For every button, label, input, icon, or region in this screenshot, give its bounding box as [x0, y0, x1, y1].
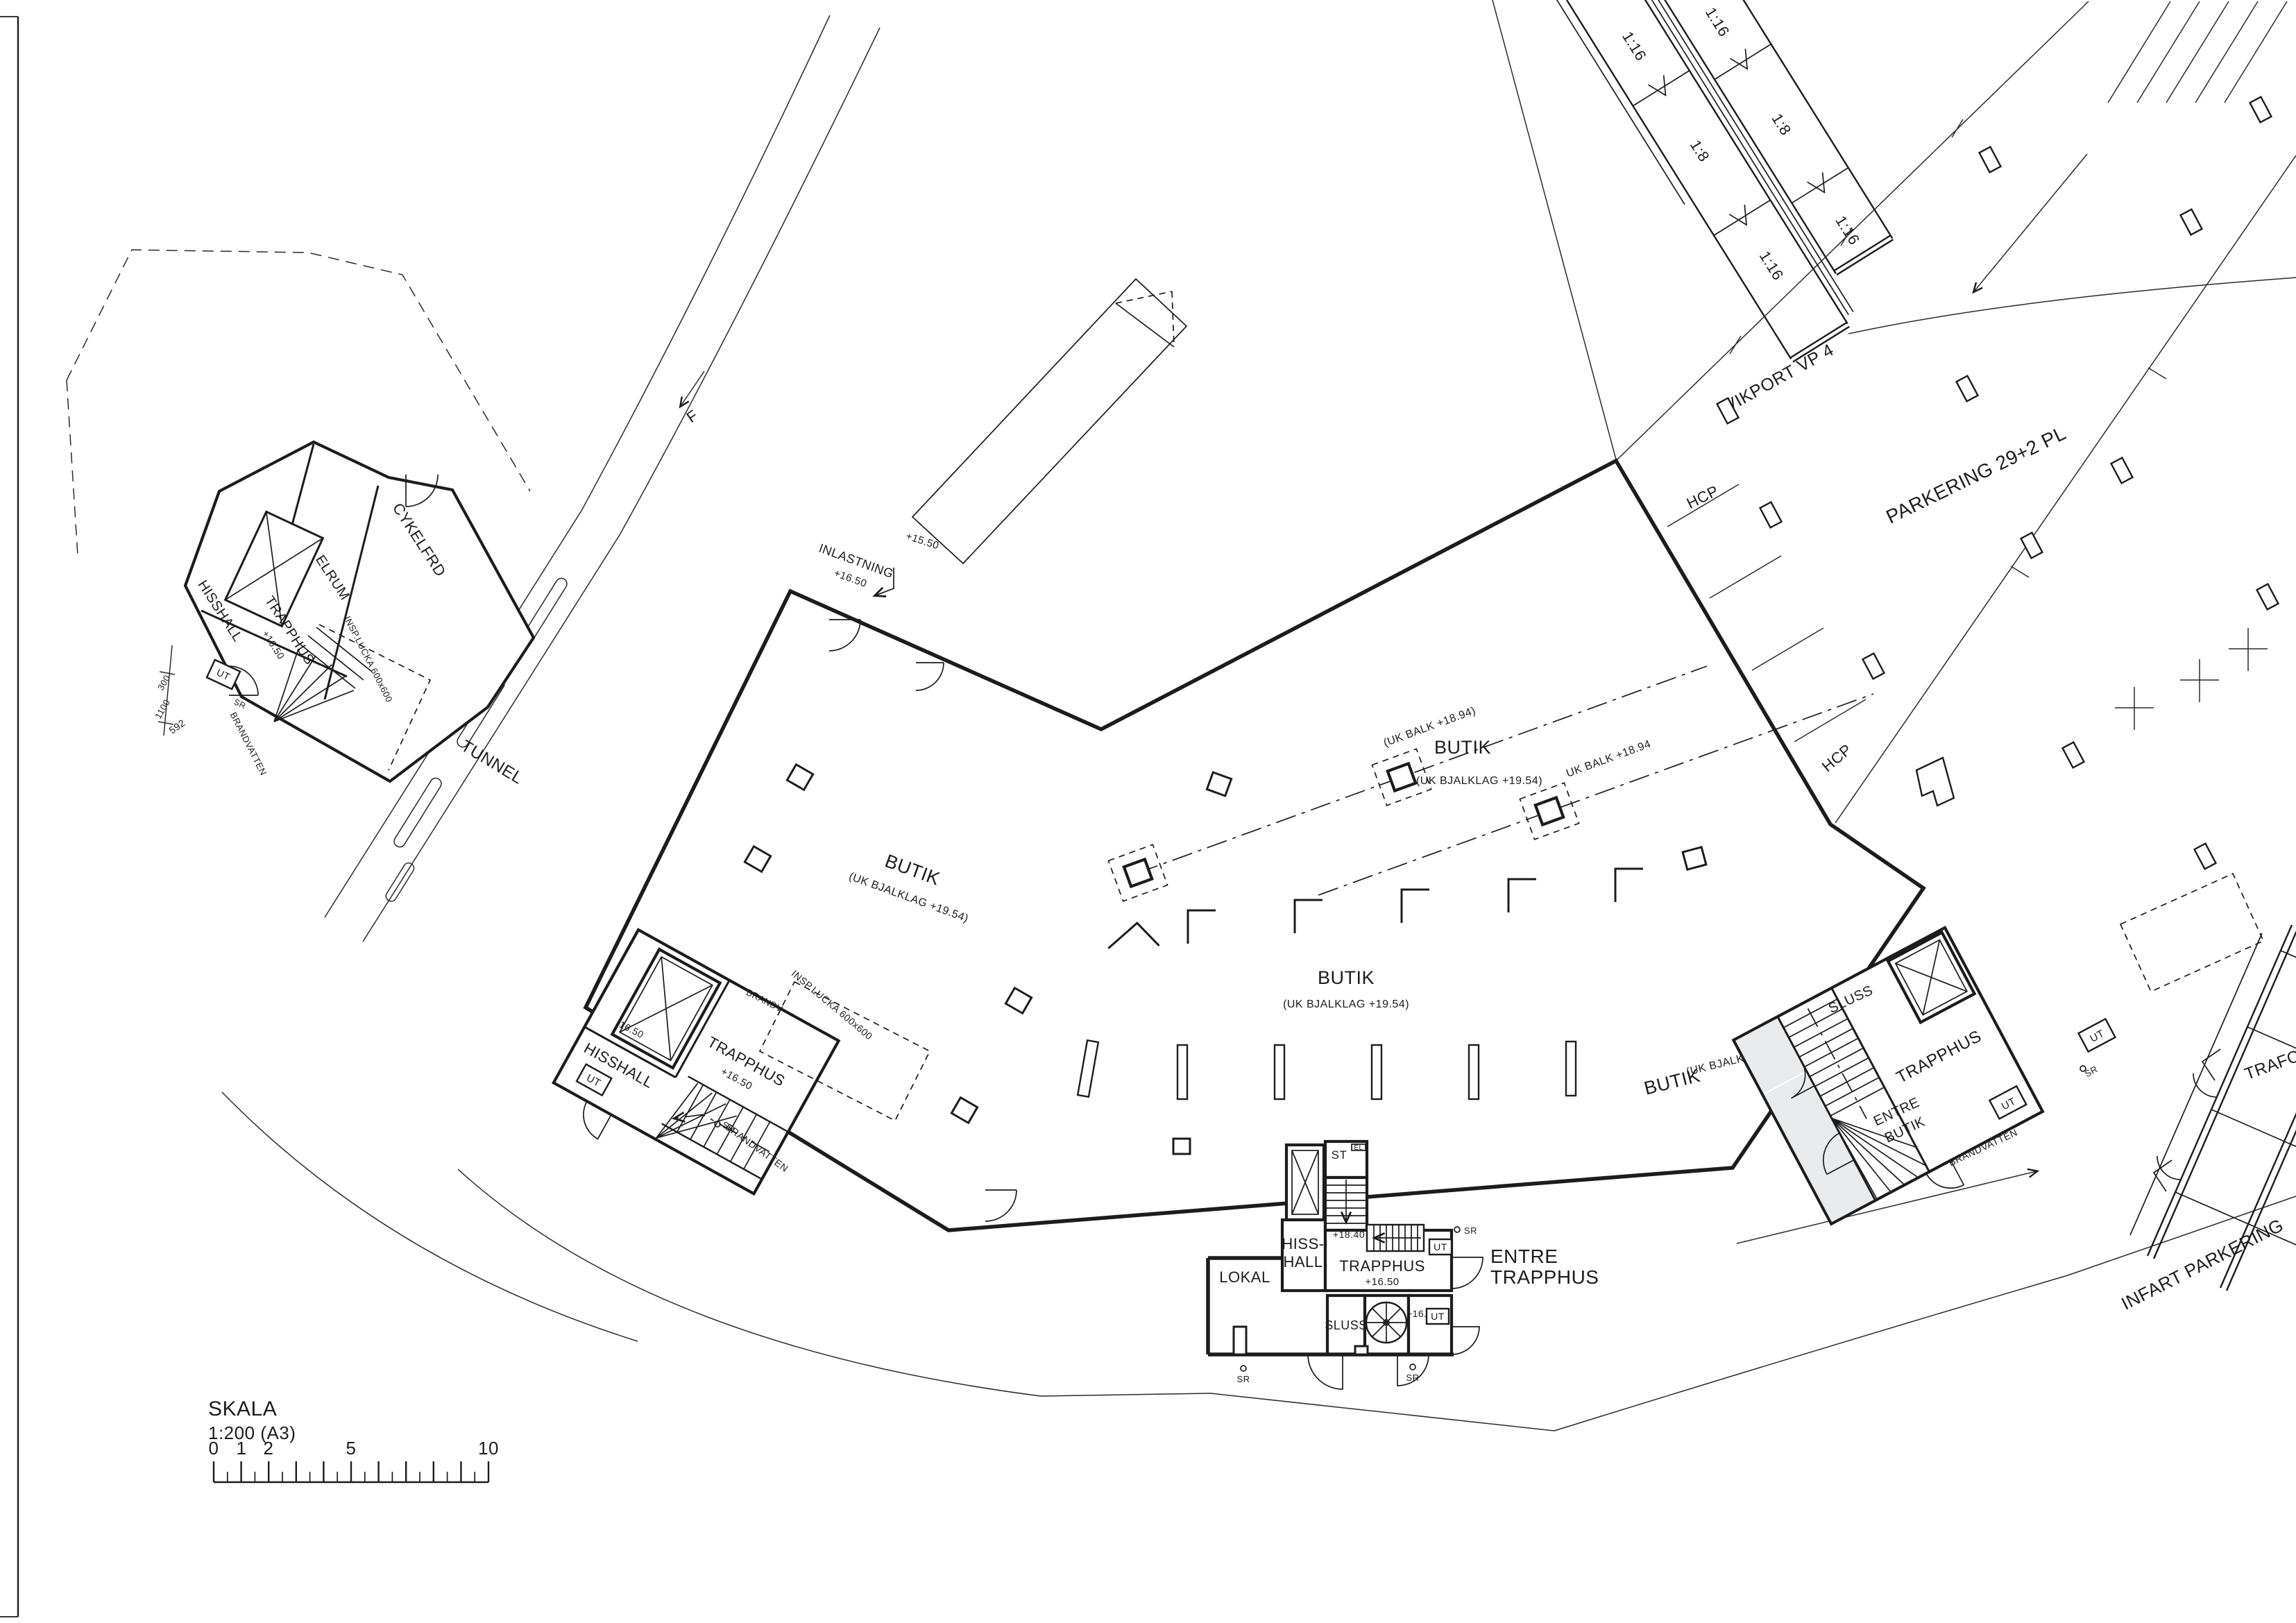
plan-drawing: F TUNNEL +15.50 1:16 1:8 1:16 1:16 1:8 1… [0, 0, 2296, 1623]
scale-num-0: 0 [209, 1438, 219, 1459]
ut-label: UT [1431, 1311, 1445, 1322]
butik-note: (UK BJALKLAG +19.54) [1283, 999, 1409, 1010]
sr-marker: SR [1406, 1373, 1419, 1383]
parkering-label: PARKERING 29+2 PL [1882, 422, 2069, 527]
sr-marker: SR [1464, 1225, 1477, 1236]
ramp-grade: 1:8 [1687, 137, 1713, 164]
scale-bar: SKALA 1:200 (A3) 0 1 2 5 10 [208, 1397, 499, 1482]
scale-num-1: 1 [237, 1438, 247, 1459]
ut-label: UT [1434, 1241, 1447, 1252]
st-label: ST [1332, 1148, 1347, 1162]
tunnel-label: TUNNEL [457, 737, 526, 788]
butik-label: BUTIK [1434, 737, 1491, 758]
butik-label: BUTIK [882, 850, 942, 889]
beam-note: UK BALK +18.94 [1565, 738, 1652, 780]
lokal-label: LOKAL [1219, 1268, 1270, 1286]
sluss-label: SLUSS [1325, 1318, 1368, 1332]
hisshall-line2: HALL [1283, 1253, 1323, 1271]
site-roads: F TUNNEL [222, 15, 2296, 1431]
ramp-grade: 1:8 [1768, 110, 1794, 138]
parking-field: PARKERING 29+2 PL HCP HCP [1493, 0, 2296, 869]
ramp-grade: 1:16 [1832, 212, 1863, 248]
scale-num-10: 10 [478, 1438, 499, 1459]
vikport-label: VIKPORT VP 4 [1721, 340, 1837, 416]
entre-trapphus-line2: TRAPPHUS [1490, 1266, 1599, 1288]
landing-level: +18.40 [1333, 1229, 1365, 1240]
scale-title: SKALA [208, 1397, 277, 1420]
butik-note: (UK BJALKLAG +19.54) [1416, 775, 1542, 787]
butik-label: BUTIK [1318, 967, 1375, 988]
hall-columns [745, 765, 1706, 1154]
ramp-grade: 1:16 [1756, 248, 1787, 283]
entre-trapphus-line1: ENTRE [1490, 1246, 1558, 1267]
parking-ramps: 1:16 1:8 1:16 1:16 1:8 1:16 [1530, 0, 1920, 366]
section-marker-f: F [683, 407, 701, 426]
bottom-annex: EL ST +18.40 HISS- HALL TRAPPHUS +16.50 … [1208, 1141, 1599, 1389]
dim-300: 300 [155, 673, 173, 692]
trapphus-label: TRAPPHUS [1339, 1257, 1425, 1275]
hall-wall-stubs [1108, 869, 1643, 955]
canopy-level: +15.50 [904, 530, 940, 552]
right-stair-core: TRAPPHUS UT [1733, 928, 2055, 1248]
ramp-grade: 1:16 [1619, 28, 1650, 64]
scale-num-5: 5 [346, 1438, 357, 1459]
brandvatten-note: BRANDVATTEN [228, 711, 269, 777]
parking-columns [1717, 97, 2279, 869]
floor-plan-sheet: F TUNNEL +15.50 1:16 1:8 1:16 1:16 1:8 1… [0, 0, 2296, 1623]
hcp-label: HCP [1684, 482, 1721, 512]
trafo-label: TRAFO [2242, 1046, 2296, 1084]
dim-592: 592 [167, 717, 187, 736]
sheet-frame [0, 17, 18, 1617]
sr-marker: SR [1236, 1374, 1250, 1384]
infart-label: INFART PARKERING [2118, 1214, 2286, 1314]
hall-wall-slots [1078, 1040, 1576, 1099]
dim-1100: 1100 [153, 697, 172, 720]
loading-ramp-structure: +15.50 [904, 279, 1187, 563]
trapphus-level: +16.50 [1365, 1276, 1399, 1288]
scale-ratio: 1:200 (A3) [208, 1422, 296, 1443]
hcp-label: HCP [1819, 740, 1855, 775]
el-label: EL [1354, 1144, 1363, 1152]
neighbor-garage: INFART PARKERING TRAFO [2118, 874, 2296, 1314]
hisshall-line1: HISS- [1282, 1235, 1324, 1252]
ramp-grade: 1:16 [1702, 4, 1733, 40]
scale-num-2: 2 [264, 1438, 274, 1459]
sr-marker: SR [2083, 1064, 2100, 1079]
